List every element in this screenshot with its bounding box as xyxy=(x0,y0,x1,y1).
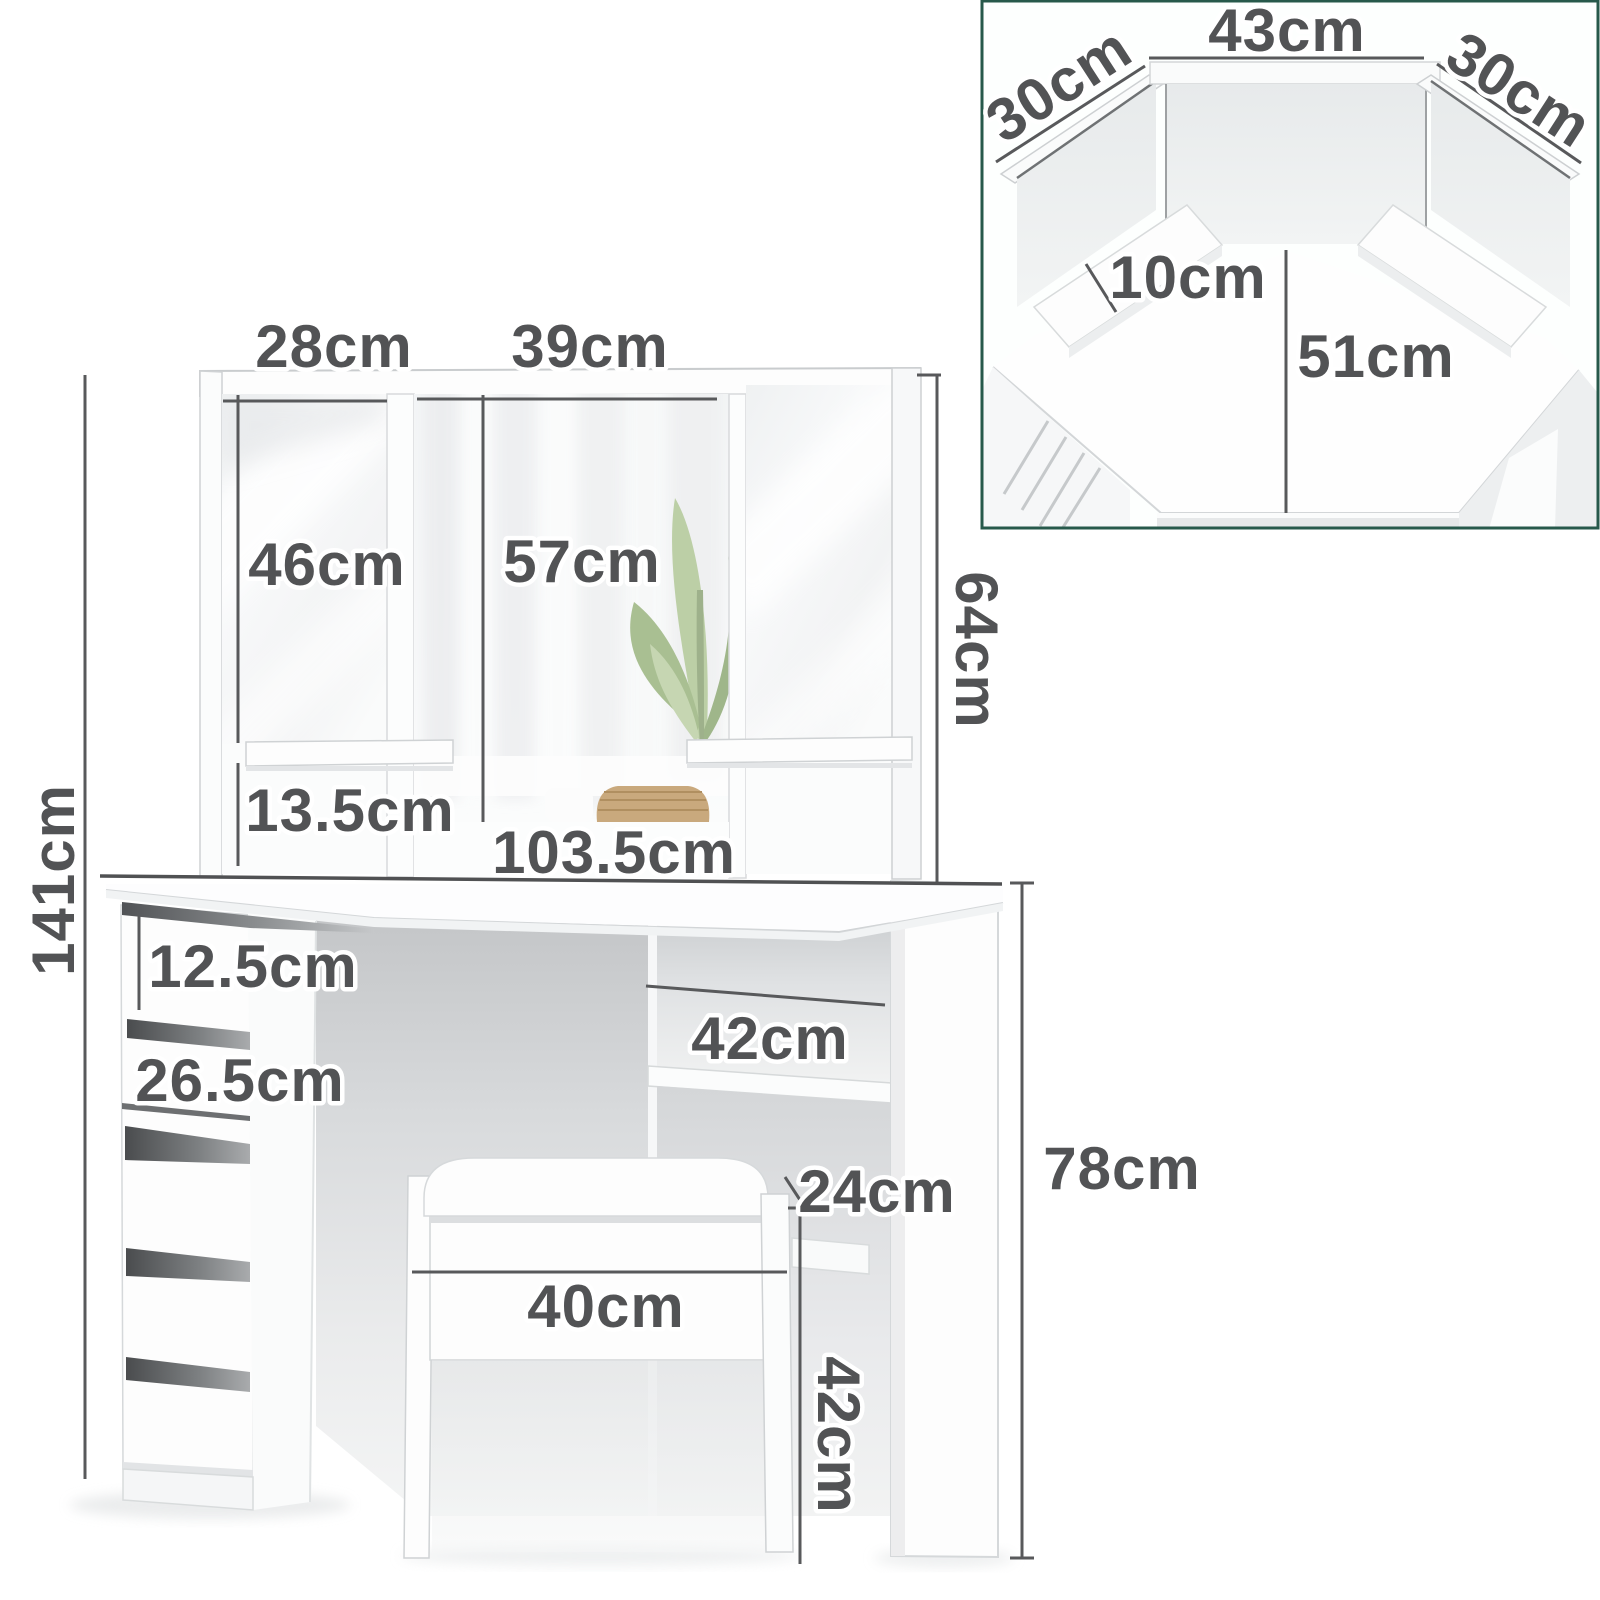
svg-text:28cm: 28cm xyxy=(255,313,412,380)
svg-text:46cm: 46cm xyxy=(248,531,405,598)
svg-text:13.5cm: 13.5cm xyxy=(245,777,455,844)
svg-text:42cm: 42cm xyxy=(691,1005,848,1072)
svg-text:12.5cm: 12.5cm xyxy=(148,933,358,1000)
svg-text:39cm: 39cm xyxy=(511,313,668,380)
svg-text:103.5cm: 103.5cm xyxy=(492,819,736,886)
svg-text:78cm: 78cm xyxy=(1043,1135,1200,1202)
svg-text:26.5cm: 26.5cm xyxy=(135,1047,345,1114)
svg-text:141cm: 141cm xyxy=(20,784,87,976)
svg-text:51cm: 51cm xyxy=(1297,323,1454,390)
svg-text:43cm: 43cm xyxy=(1208,0,1365,64)
svg-text:24cm: 24cm xyxy=(798,1158,955,1225)
svg-text:40cm: 40cm xyxy=(527,1273,684,1340)
svg-text:42cm: 42cm xyxy=(805,1356,872,1513)
svg-text:64cm: 64cm xyxy=(943,571,1010,728)
svg-text:57cm: 57cm xyxy=(503,528,660,595)
svg-text:10cm: 10cm xyxy=(1109,244,1266,311)
